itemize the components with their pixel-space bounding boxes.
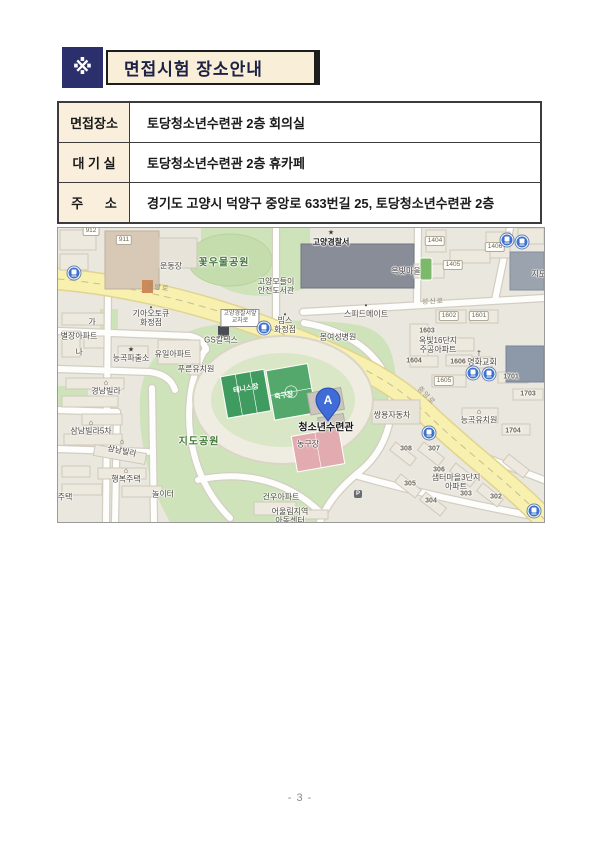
row-value-waiting-room: 토당청소년수련관 2층 휴카페	[130, 143, 540, 182]
bus-stop-icon	[528, 505, 541, 518]
table-row: 대 기 실 토당청소년수련관 2층 휴카페	[59, 142, 540, 182]
page-number: - 3 -	[0, 792, 600, 804]
building-number-plate: 1602	[439, 311, 459, 321]
table-row: 주 소 경기도 고양시 덕양구 중앙로 633번길 25, 토당청소년수련관 2…	[59, 182, 540, 222]
row-label-waiting-room: 대 기 실	[59, 143, 130, 182]
row-label-address: 주 소	[59, 183, 130, 222]
row-value-interview-place: 토당청소년수련관 2층 회의실	[130, 103, 540, 142]
bus-stop-icon	[68, 267, 81, 280]
building-number-plate: 1601	[469, 311, 489, 321]
document-page: ※ 면접시험 장소안내 면접장소 토당청소년수련관 2층 회의실 대 기 실 토…	[0, 0, 600, 849]
page-title: 면접시험 장소안내	[124, 55, 263, 80]
building-number-plate: 911	[116, 235, 132, 245]
table-row: 면접장소 토당청소년수련관 2층 회의실	[59, 103, 540, 142]
bus-stop-icon	[423, 427, 436, 440]
page-title-box: 면접시험 장소안내	[106, 50, 320, 85]
building-number-plate: 1605	[434, 376, 454, 386]
building-number-plate: 912	[83, 227, 100, 236]
building-number-plate: 1404	[425, 236, 445, 246]
row-label-interview-place: 면접장소	[59, 103, 130, 142]
tennis-court	[220, 369, 271, 418]
venue-info-table: 면접장소 토당청소년수련관 2층 회의실 대 기 실 토당청소년수련관 2층 휴…	[57, 101, 542, 224]
header-bullet-box: ※	[62, 47, 103, 88]
row-value-address: 경기도 고양시 덕양구 중앙로 633번길 25, 토당청소년수련관 2층	[130, 183, 540, 222]
header-bullet-glyph: ※	[73, 55, 92, 80]
bus-stop-icon	[258, 322, 271, 335]
bus-stop-icon	[467, 367, 480, 380]
bus-stop-icon	[501, 234, 514, 247]
marker-letter: A	[324, 393, 333, 407]
bus-stop-icon	[483, 368, 496, 381]
bus-stop-icon	[516, 236, 529, 249]
building-number-plate: 1405	[443, 260, 463, 270]
location-map: A 꽃우물공원운동장고양경찰서★고양모들이 안전도서관옥빛마을지도성신로중앙로중…	[57, 227, 545, 523]
